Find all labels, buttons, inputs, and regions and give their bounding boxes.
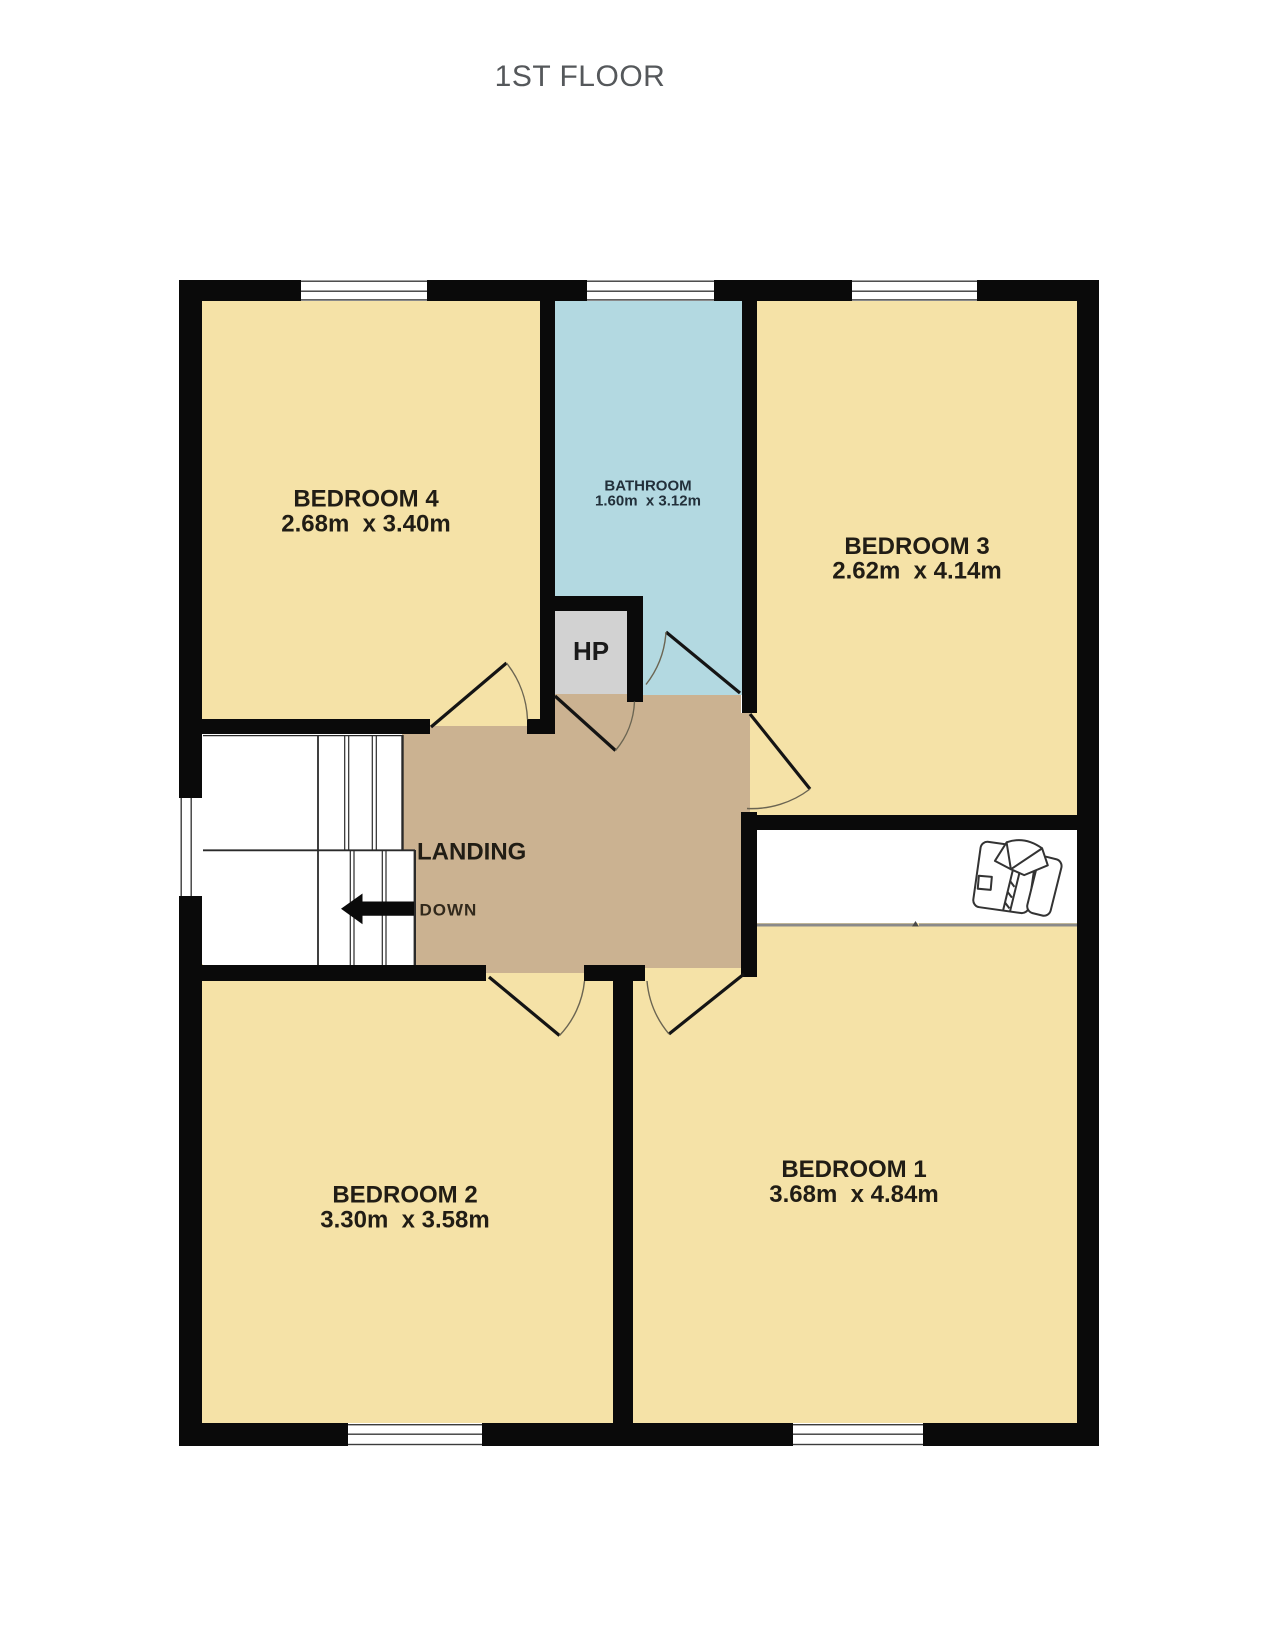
svg-text:1ST FLOOR: 1ST FLOOR <box>495 60 666 93</box>
svg-text:BEDROOM 4: BEDROOM 4 <box>293 486 439 513</box>
svg-text:BEDROOM 3: BEDROOM 3 <box>844 533 989 560</box>
svg-text:HP: HP <box>573 636 609 666</box>
svg-text:2.68m x 3.40m: 2.68m x 3.40m <box>281 511 450 538</box>
svg-text:LANDING: LANDING <box>417 839 526 866</box>
svg-text:3.30m x 3.58m: 3.30m x 3.58m <box>320 1207 489 1234</box>
svg-text:2.62m x 4.14m: 2.62m x 4.14m <box>832 558 1001 585</box>
svg-text:DOWN: DOWN <box>420 901 478 920</box>
svg-text:1.60m x 3.12m: 1.60m x 3.12m <box>595 493 701 510</box>
svg-text:3.68m x 4.84m: 3.68m x 4.84m <box>769 1181 938 1208</box>
svg-text:BEDROOM 2: BEDROOM 2 <box>332 1182 477 1209</box>
svg-text:BEDROOM 1: BEDROOM 1 <box>781 1156 926 1183</box>
